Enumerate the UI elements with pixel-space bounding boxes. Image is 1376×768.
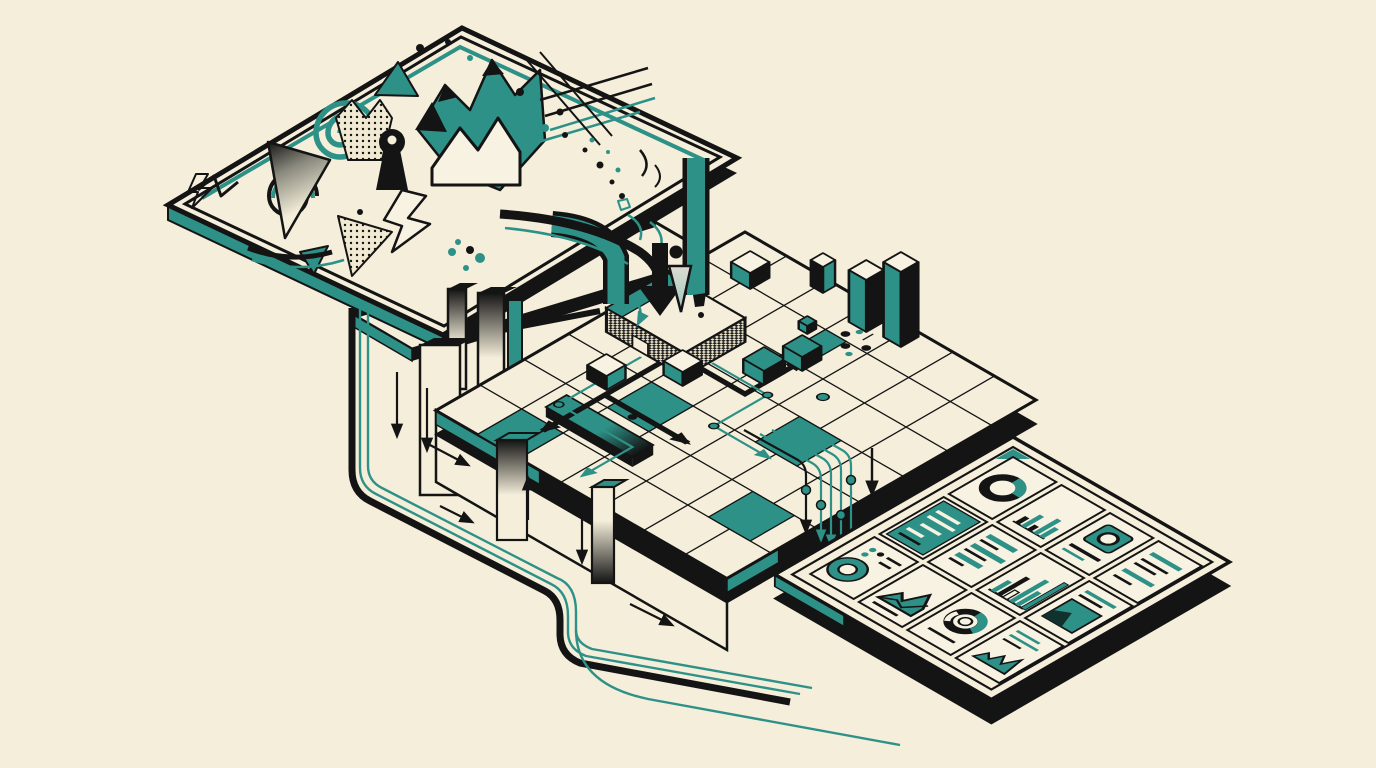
falling-chip	[693, 293, 706, 307]
keyhole-hole	[388, 136, 397, 145]
drop-dot	[670, 246, 683, 259]
falling-chip-dot	[698, 312, 704, 318]
illustration-stage	[0, 0, 1376, 768]
pipeline-illustration	[0, 0, 1376, 768]
